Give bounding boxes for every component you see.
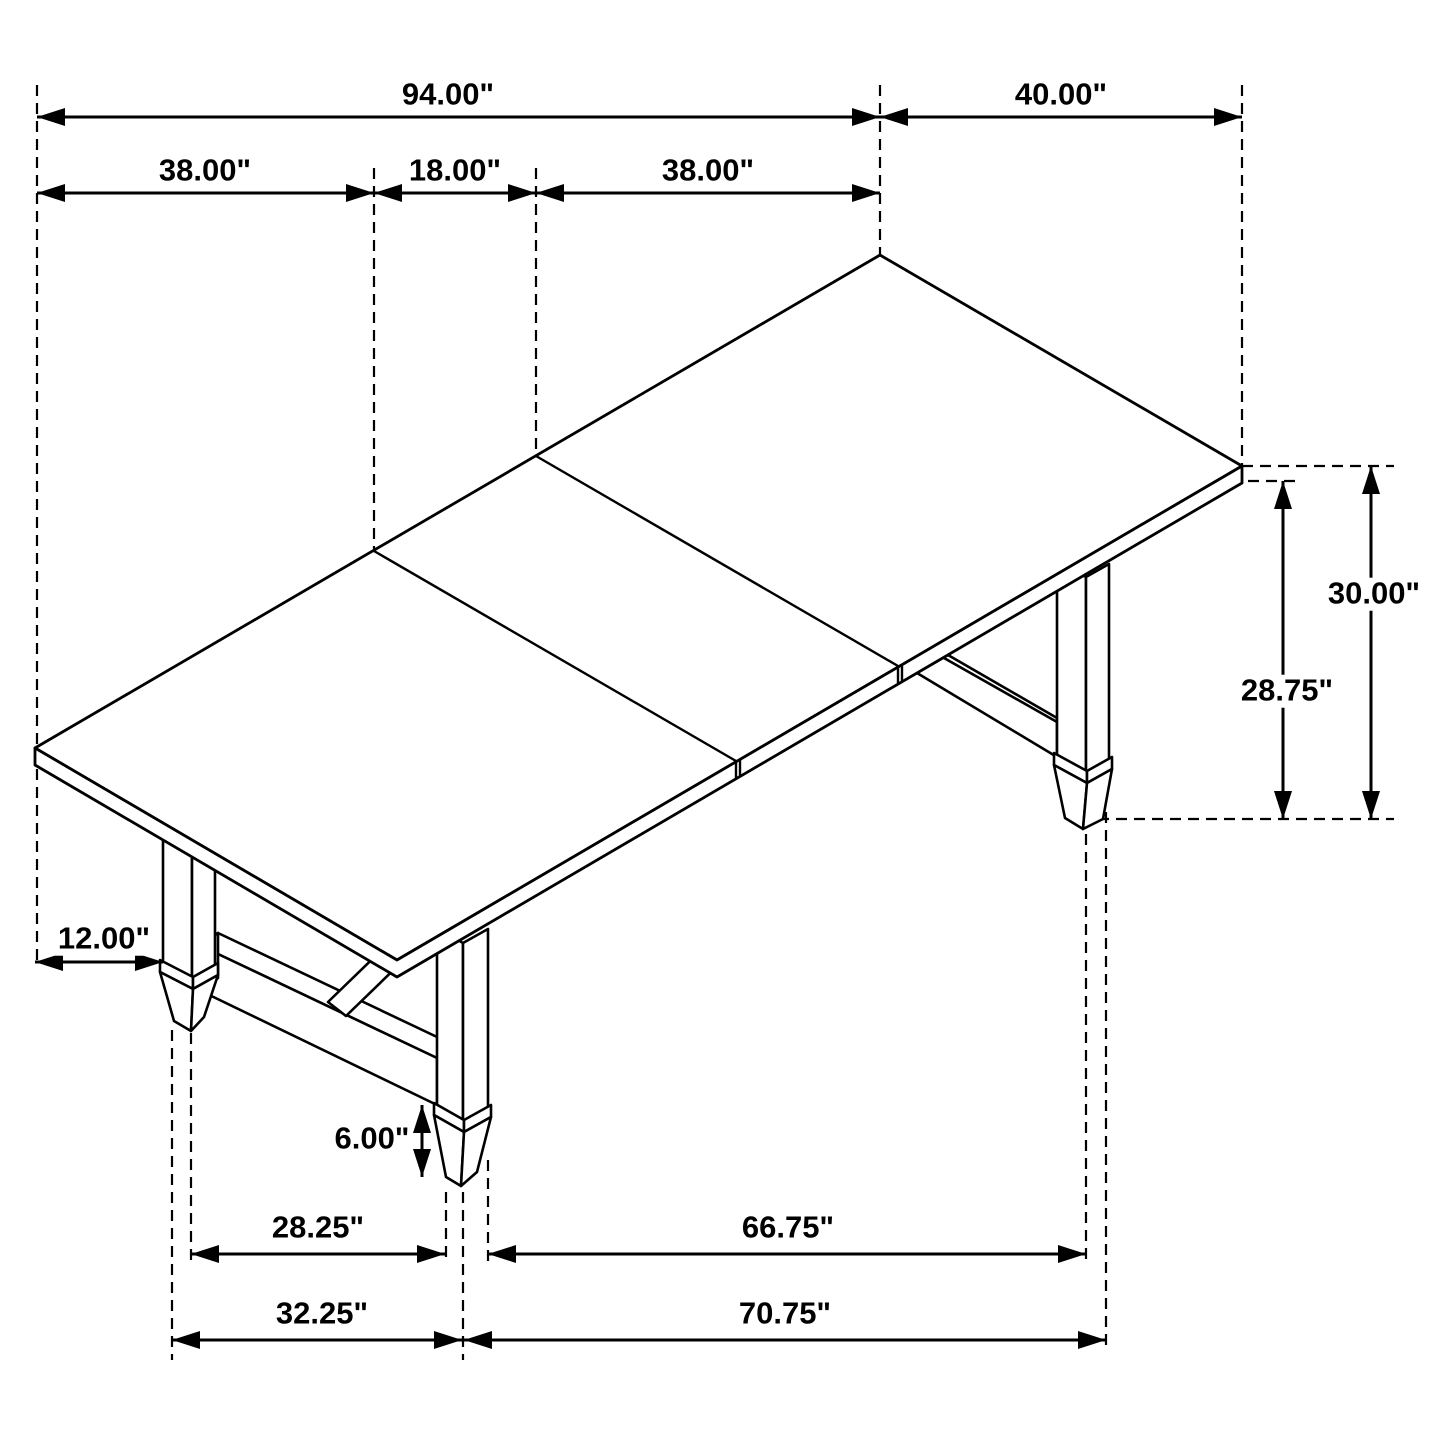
dim-label-feet-inner-left: 28.25"	[269, 1212, 367, 1245]
technical-drawing-page: 94.00" 40.00" 38.00" 18.00" 38.00" 30.00…	[0, 0, 1445, 1445]
table-dimension-drawing	[0, 0, 1445, 1445]
dim-label-feet-outer-left: 32.25"	[273, 1298, 371, 1331]
front-right-leg-side	[1086, 564, 1109, 772]
dim-label-feet-outer-right: 70.75"	[736, 1298, 834, 1331]
dim-label-height-underside: 28.75"	[1238, 675, 1336, 708]
right-trestle-beam	[917, 655, 1057, 757]
dim-label-leaf-center: 18.00"	[406, 155, 504, 188]
dim-label-height-total: 30.00"	[1325, 578, 1423, 611]
front-left-leg-side	[463, 929, 488, 1122]
dim-label-leaf-left: 38.00"	[156, 155, 254, 188]
dim-label-leaf-right: 38.00"	[659, 155, 757, 188]
dim-label-leg-inset: 12.00"	[55, 923, 153, 956]
back-left-leg-face	[163, 835, 192, 979]
dim-label-table-width: 40.00"	[1012, 79, 1110, 112]
front-left-leg-face	[437, 928, 463, 1122]
dim-label-stretcher-clearance: 6.00"	[331, 1123, 412, 1156]
front-right-leg-face	[1057, 560, 1086, 772]
dim-label-table-length: 94.00"	[399, 79, 497, 112]
dim-label-feet-inner-right: 66.75"	[739, 1212, 837, 1245]
